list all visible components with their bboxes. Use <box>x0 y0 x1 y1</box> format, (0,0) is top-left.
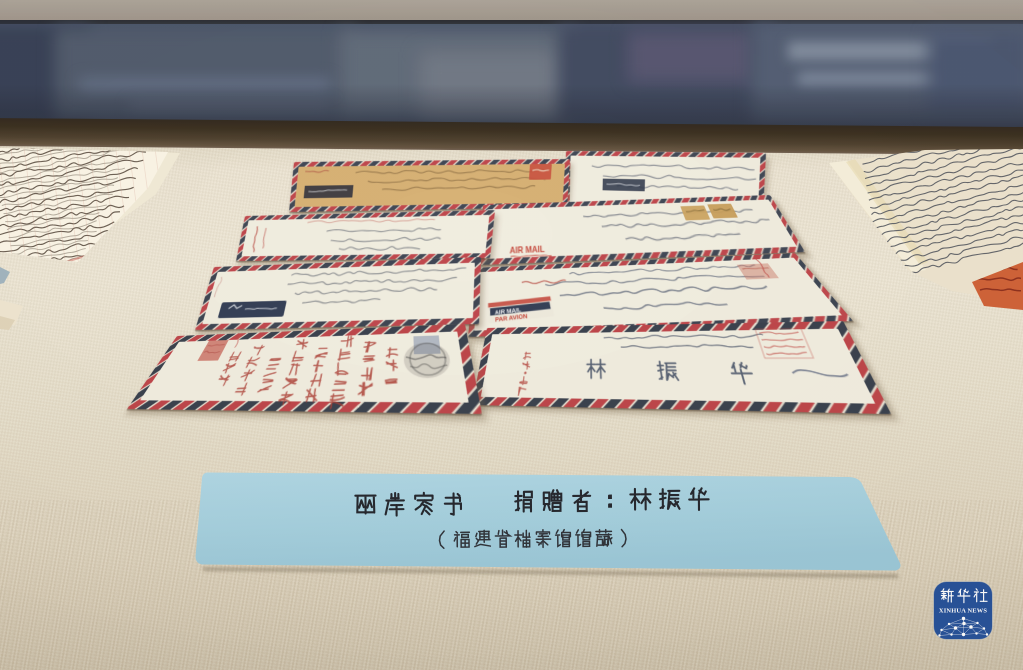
svg-text:XINHUA NEWS: XINHUA NEWS <box>939 608 987 615</box>
